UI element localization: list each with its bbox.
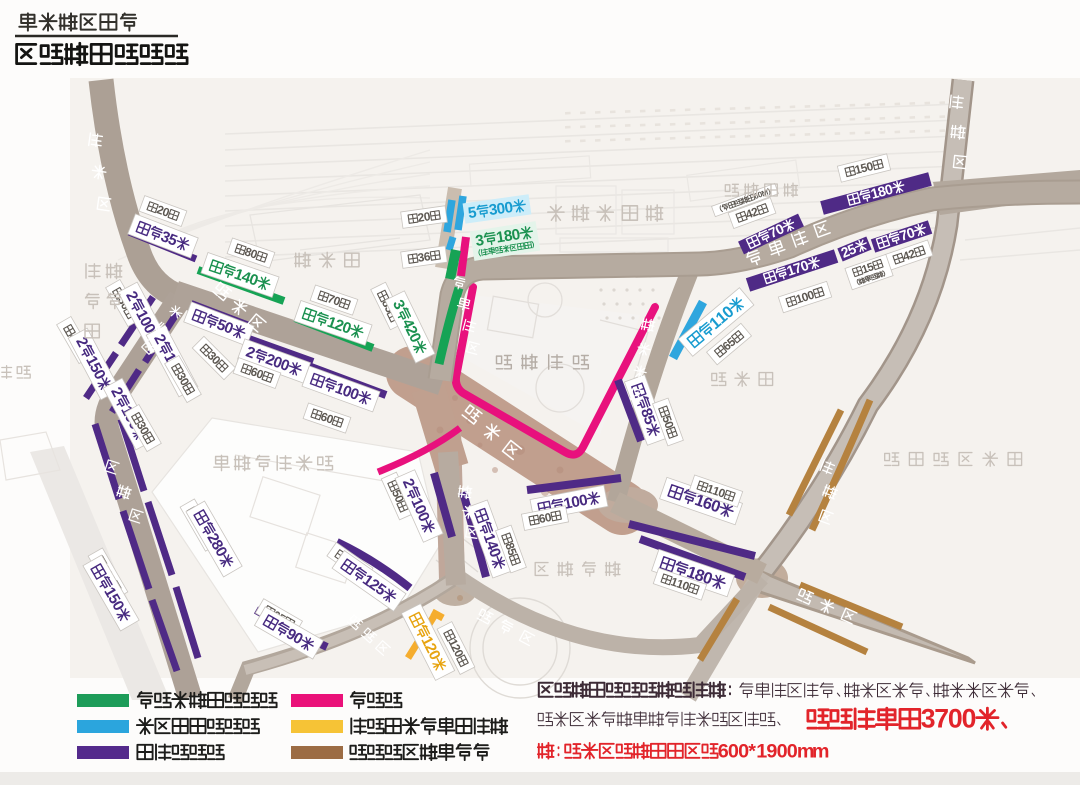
svg-text:*: * bbox=[748, 740, 756, 762]
svg-text:3: 3 bbox=[921, 704, 936, 734]
svg-text:0: 0 bbox=[948, 704, 963, 734]
svg-text:0: 0 bbox=[962, 704, 977, 734]
svg-text:7: 7 bbox=[934, 704, 949, 734]
svg-text:m: m bbox=[812, 740, 830, 762]
